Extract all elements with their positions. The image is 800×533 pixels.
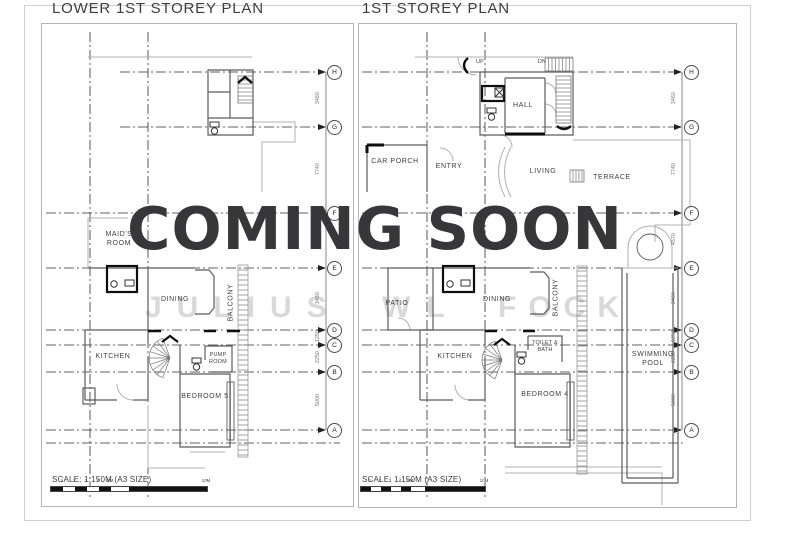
scale-tick: 10M [198,478,214,483]
room-label-kitchen-right: KITCHEN [431,352,479,361]
floorplan-linework [0,0,800,533]
drawing-sheet: JULIUS WL FOCK [0,0,800,533]
grid-bubble-left-a: A [327,423,342,438]
room-label-living: LIVING [516,167,570,176]
room-label-toilet-bath: TOILET & BATH [532,340,558,353]
dim-label: 5000 [315,385,321,415]
room-label-dining-left: DINING [153,295,197,304]
grid-bubble-right-h: H [684,65,699,80]
scale-tick: 3 [80,478,92,483]
dim-label: 2250 [315,342,321,372]
right-plan-title: 1ST STOREY PLAN [362,0,510,17]
room-label-car-porch: CAR PORCH [363,157,427,166]
scale-bar-left [50,486,208,492]
room-label-terrace: TERRACE [582,173,642,182]
room-label-entry: ENTRY [422,162,476,171]
room-label-swimming-pool: SWIMMING POOL [625,350,681,368]
dim-label: 3460 [315,283,321,313]
room-label-kitchen-left: KITCHEN [89,352,137,361]
room-label-dining-right: DINING [470,295,524,304]
light-outline [88,57,690,505]
room-label-balcony-right: BALCONY [551,273,560,323]
room-label-hall: HALL [496,101,550,110]
grid-bubble-left-e: E [327,261,342,276]
room-label-pump-room: PUMP ROOM [209,352,227,365]
left-plan-title: LOWER 1ST STOREY PLAN [52,0,264,17]
stair-hatch [238,58,587,474]
grid-bubble-right-a: A [684,423,699,438]
dim-label: 7740 [671,154,677,184]
grid-bubble-left-g: G [327,120,342,135]
coming-soon-overlay: COMING SOON [85,199,665,258]
dim-label: 7740 [315,154,321,184]
grid-bubble-right-d: D [684,323,699,338]
grid-bubble-left-h: H [327,65,342,80]
grid-bubble-right-f: F [684,206,699,221]
grid-bubble-left-b: B [327,365,342,380]
grid-bubble-right-e: E [684,261,699,276]
scale-tick: 2 [68,478,80,483]
dim-label: 5000 [671,385,677,415]
grid-bubble-right-c: C [684,338,699,353]
walls [83,70,678,483]
stair-label-up: UP [472,59,488,66]
grid-lines [46,32,686,500]
dim-label: 3460 [671,283,677,313]
stair-label-dn: DN [534,59,550,66]
scale-bar-right [360,486,486,492]
dim-label: 4570 [671,224,677,254]
room-label-bedroom-5: BEDROOM 5 [178,392,232,401]
scale-tick: 1 [56,478,68,483]
room-label-balcony-left: BALCONY [226,278,235,328]
dim-label: 3460 [671,83,677,113]
scale-tick: 5M [104,478,116,483]
grid-bubble-right-g: G [684,120,699,135]
scale-tick: 4 [92,478,104,483]
grid-bubble-right-b: B [684,365,699,380]
room-label-patio: PATIO [370,299,424,308]
grid-bubble-left-d: D [327,323,342,338]
grid-bubble-left-c: C [327,338,342,353]
scale-tick: 10M [476,478,492,483]
scale-tick: 5M [404,478,416,483]
room-label-bedroom-4: BEDROOM 4 [518,390,572,399]
dim-label: 3460 [315,83,321,113]
